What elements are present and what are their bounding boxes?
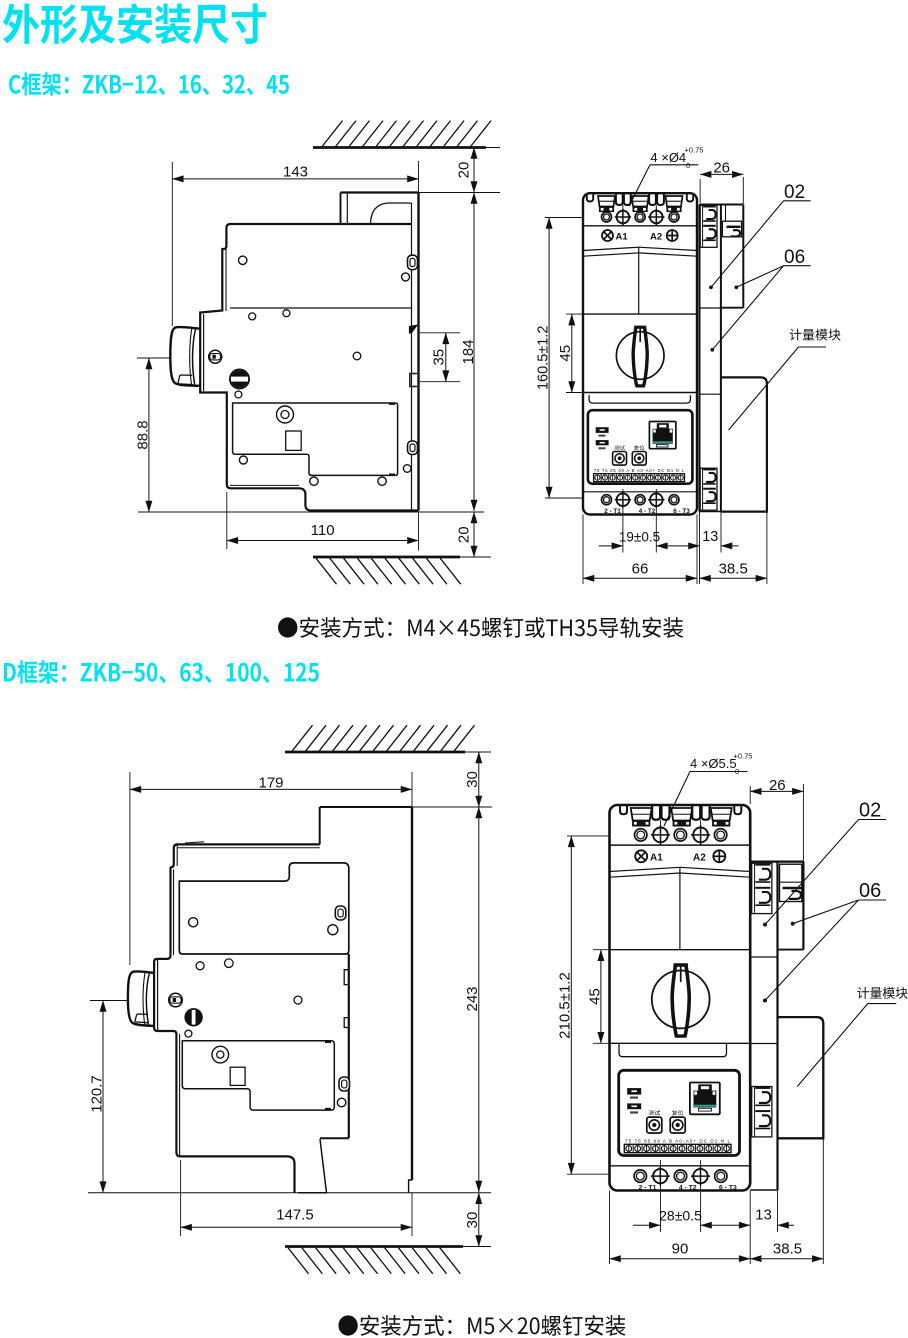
svg-text:147.5: 147.5 bbox=[276, 1207, 314, 1224]
svg-text:2 - T1: 2 - T1 bbox=[604, 508, 621, 515]
svg-text:A1: A1 bbox=[650, 853, 663, 864]
svg-text:88.8: 88.8 bbox=[134, 420, 151, 449]
svg-text:4 ×Ø5.5: 4 ×Ø5.5 bbox=[690, 756, 737, 771]
svg-text:90: 90 bbox=[672, 1241, 689, 1258]
svg-text:38.5: 38.5 bbox=[773, 1241, 802, 1258]
svg-text:+0.75: +0.75 bbox=[734, 752, 753, 761]
svg-text:45: 45 bbox=[586, 988, 603, 1005]
svg-text:26: 26 bbox=[713, 160, 730, 177]
svg-text:45: 45 bbox=[557, 345, 574, 362]
svg-text:160.5±1.2: 160.5±1.2 bbox=[535, 326, 551, 390]
svg-text:75 76 65 68 A B A0-A0+ DC D1 N: 75 76 65 68 A B A0-A0+ DC D1 N L bbox=[625, 1139, 730, 1144]
svg-text:28±0.5: 28±0.5 bbox=[659, 1207, 702, 1223]
svg-text:6 - T3: 6 - T3 bbox=[719, 1185, 737, 1192]
svg-text:4 ×Ø4: 4 ×Ø4 bbox=[650, 150, 686, 165]
svg-text:0: 0 bbox=[686, 161, 690, 170]
svg-text:75 76 65 68 A B A0-A0+ DC D1 N: 75 76 65 68 A B A0-A0+ DC D1 N L bbox=[594, 468, 685, 473]
svg-text:06: 06 bbox=[784, 247, 805, 268]
svg-text:110: 110 bbox=[311, 522, 335, 539]
svg-text:2 - T1: 2 - T1 bbox=[639, 1185, 657, 1192]
svg-text:A2: A2 bbox=[693, 853, 706, 864]
svg-text:A1: A1 bbox=[616, 231, 629, 242]
svg-text:30: 30 bbox=[464, 771, 481, 788]
svg-text:4 - T2: 4 - T2 bbox=[639, 508, 656, 515]
svg-text:143: 143 bbox=[283, 164, 308, 181]
svg-text:13: 13 bbox=[755, 1207, 772, 1224]
svg-text:30: 30 bbox=[464, 1212, 481, 1229]
svg-text:6 - T3: 6 - T3 bbox=[673, 508, 690, 515]
svg-text:38.5: 38.5 bbox=[719, 560, 748, 577]
svg-text:06: 06 bbox=[859, 880, 881, 902]
svg-text:19±0.5: 19±0.5 bbox=[619, 529, 660, 544]
svg-text:02: 02 bbox=[784, 182, 805, 203]
svg-text:20: 20 bbox=[455, 526, 472, 543]
svg-text:120.7: 120.7 bbox=[89, 1075, 106, 1113]
svg-text:+0.75: +0.75 bbox=[685, 146, 704, 155]
svg-text:184: 184 bbox=[460, 339, 477, 364]
svg-text:A2: A2 bbox=[650, 231, 662, 242]
svg-text:210.5±1.2: 210.5±1.2 bbox=[557, 972, 574, 1039]
svg-text:179: 179 bbox=[258, 774, 283, 791]
svg-text:4 - T2: 4 - T2 bbox=[679, 1185, 697, 1192]
svg-text:13: 13 bbox=[702, 529, 718, 545]
svg-text:20: 20 bbox=[455, 162, 472, 179]
svg-text:243: 243 bbox=[464, 986, 481, 1011]
svg-text:35: 35 bbox=[431, 349, 448, 366]
svg-text:26: 26 bbox=[769, 777, 786, 794]
svg-text:66: 66 bbox=[632, 560, 649, 577]
svg-text:02: 02 bbox=[859, 800, 881, 822]
